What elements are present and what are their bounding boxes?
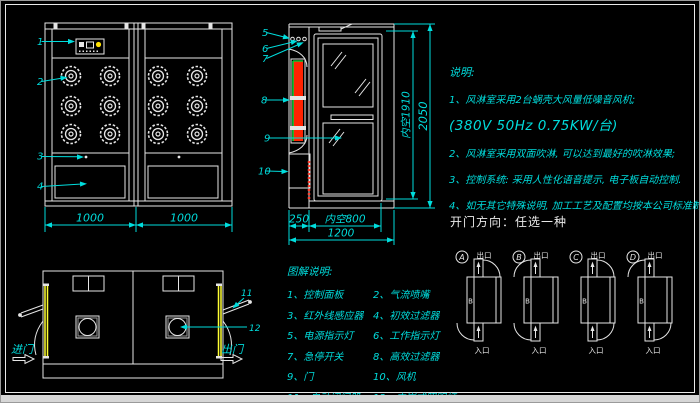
air-nozzle-icon (188, 67, 207, 86)
notes-line: 2、风淋室采用双面吹淋, 可以达到最好的吹淋效果; (449, 145, 700, 160)
inner-width-label: B (525, 298, 530, 306)
fan-box (289, 154, 310, 201)
enter-label: 入口 (589, 346, 604, 355)
inner-width-label: B (582, 298, 587, 306)
enter-label: 入口 (475, 346, 490, 355)
legend-title: 图解说明: (287, 264, 459, 279)
legend-item: 8、高效过滤器 (373, 348, 459, 369)
air-nozzle-icon (62, 97, 81, 116)
air-nozzle-icon (149, 97, 168, 116)
notes-panel: 说明: 1、风淋室采用2台蜗壳大风量低噪音风机; (380V 50Hz 0.75… (449, 64, 700, 212)
air-nozzle-icon (149, 125, 168, 144)
plan-sketch (628, 259, 672, 341)
side-width-dimensions: 250 内空800 1200 (289, 203, 394, 245)
inner-width-label: B (468, 298, 473, 306)
infrared-sensor-dot (85, 156, 88, 159)
plan-sketch (514, 259, 558, 341)
callout-4: 4 (37, 182, 43, 193)
plan-body-outline (43, 271, 223, 378)
legend-item: 10、风机 (373, 368, 459, 389)
legend-item: 6、工作指示灯 (373, 327, 459, 348)
option-letter: B (516, 253, 522, 262)
notes-line-voltage: (380V 50Hz 0.75KW/台) (449, 114, 700, 134)
glass-hatch-marks (329, 52, 370, 146)
door-glass-upper (323, 44, 373, 107)
dim-inner-width: 内空800 (324, 214, 365, 226)
legend-item: 3、红外线感应器 (287, 307, 373, 328)
callout-12: 12 (249, 324, 261, 334)
callout-7: 7 (262, 54, 269, 65)
option-letter: C (573, 253, 579, 262)
notes-title: 说明: (449, 64, 700, 80)
callout-11: 11 (241, 289, 252, 299)
cad-drawing-sheet: 1 2 3 4 1000 1000 (0, 0, 700, 403)
door-glass-lower (323, 123, 373, 194)
door-option-b: B 出口 B 入口 (510, 247, 566, 357)
door-direction-title: 开门方向：任选一种 (450, 213, 567, 230)
notes-line: 1、风淋室采用2台蜗壳大风量低噪音风机; (449, 91, 700, 106)
plan-sketch (457, 259, 501, 341)
primary-filter-grille (55, 166, 125, 198)
front-width-dimensions: 1000 1000 (45, 207, 232, 232)
legend-item: 9、门 (287, 368, 373, 389)
legend-item: 5、电源指示灯 (287, 327, 373, 348)
enter-label: 入口 (532, 346, 547, 355)
power-indicator-dot (96, 42, 101, 47)
air-nozzle-icon (101, 97, 120, 116)
front-cabinet-outline (45, 23, 232, 206)
dim-total-height: 2050 (416, 101, 430, 130)
notes-line: 4、如无其它特殊说明, 加工工艺及配置均按本公司标准制作. (449, 197, 700, 212)
notes-line: 3、控制系统: 采用人性化语音提示, 电子板自动控制. (449, 171, 700, 186)
air-nozzle-icon (62, 67, 81, 86)
callout-9: 9 (264, 134, 270, 145)
option-letter: D (630, 253, 636, 262)
callout-8: 8 (261, 96, 267, 107)
infrared-sensor-dot (178, 156, 181, 159)
legend-panel: 图解说明: 1、控制面板 2、气流喷嘴 3、红外线感应器 4、初效过滤器 5、电… (287, 264, 459, 403)
callout-5: 5 (262, 28, 268, 39)
door-option-a: A 出口 B 入口 (453, 247, 509, 357)
air-nozzle-icon (62, 125, 81, 144)
primary-filter-grille (148, 166, 218, 198)
callout-1: 1 (37, 37, 43, 48)
callout-2: 2 (37, 77, 43, 88)
air-nozzle-icon (188, 125, 207, 144)
hepa-filter (290, 59, 306, 143)
plan-view-drawing: 11 12 进门 出门 (9, 263, 267, 401)
bottom-border-band (1, 395, 699, 402)
indicator-lamps (291, 37, 307, 41)
side-height-dimensions: 内空1910 2050 (386, 24, 435, 208)
door-elevation (314, 24, 382, 201)
door-closer (319, 27, 341, 31)
dim-total-width: 1200 (328, 228, 355, 240)
dim-left-depth: 250 (289, 214, 309, 226)
option-letter: A (458, 253, 464, 262)
dim-left-width: 1000 (76, 212, 104, 225)
door-closer-mechanisms (19, 300, 252, 317)
door-option-c: C 出口 B 入口 (567, 247, 623, 357)
control-panel (76, 39, 104, 54)
legend-list: 1、控制面板 2、气流喷嘴 3、红外线感应器 4、初效过滤器 5、电源指示灯 6… (287, 286, 459, 403)
callout-10: 10 (258, 167, 271, 178)
legend-item: 7、急停开关 (287, 348, 373, 369)
air-nozzle-icon (149, 67, 168, 86)
air-nozzle-icon (101, 125, 120, 144)
dim-inner-height: 内空1910 (401, 91, 413, 139)
inner-width-label: B (639, 298, 644, 306)
front-view-drawing: 1 2 3 4 1000 1000 (28, 11, 238, 243)
legend-item: 1、控制面板 (287, 286, 373, 307)
side-view-drawing: 5 6 7 8 9 10 内空1910 (249, 11, 449, 257)
door-option-d: D 出口 B 入口 (624, 247, 680, 357)
door-push-bar (331, 115, 373, 120)
legend-item: 2、气流喷嘴 (373, 286, 459, 307)
dim-right-width: 1000 (170, 212, 198, 225)
enter-label: 入口 (646, 346, 661, 355)
air-nozzle-icon (101, 67, 120, 86)
enter-door-label: 进门 (11, 343, 35, 356)
air-nozzle-icon (188, 97, 207, 116)
legend-item: 4、初效过滤器 (373, 307, 459, 328)
